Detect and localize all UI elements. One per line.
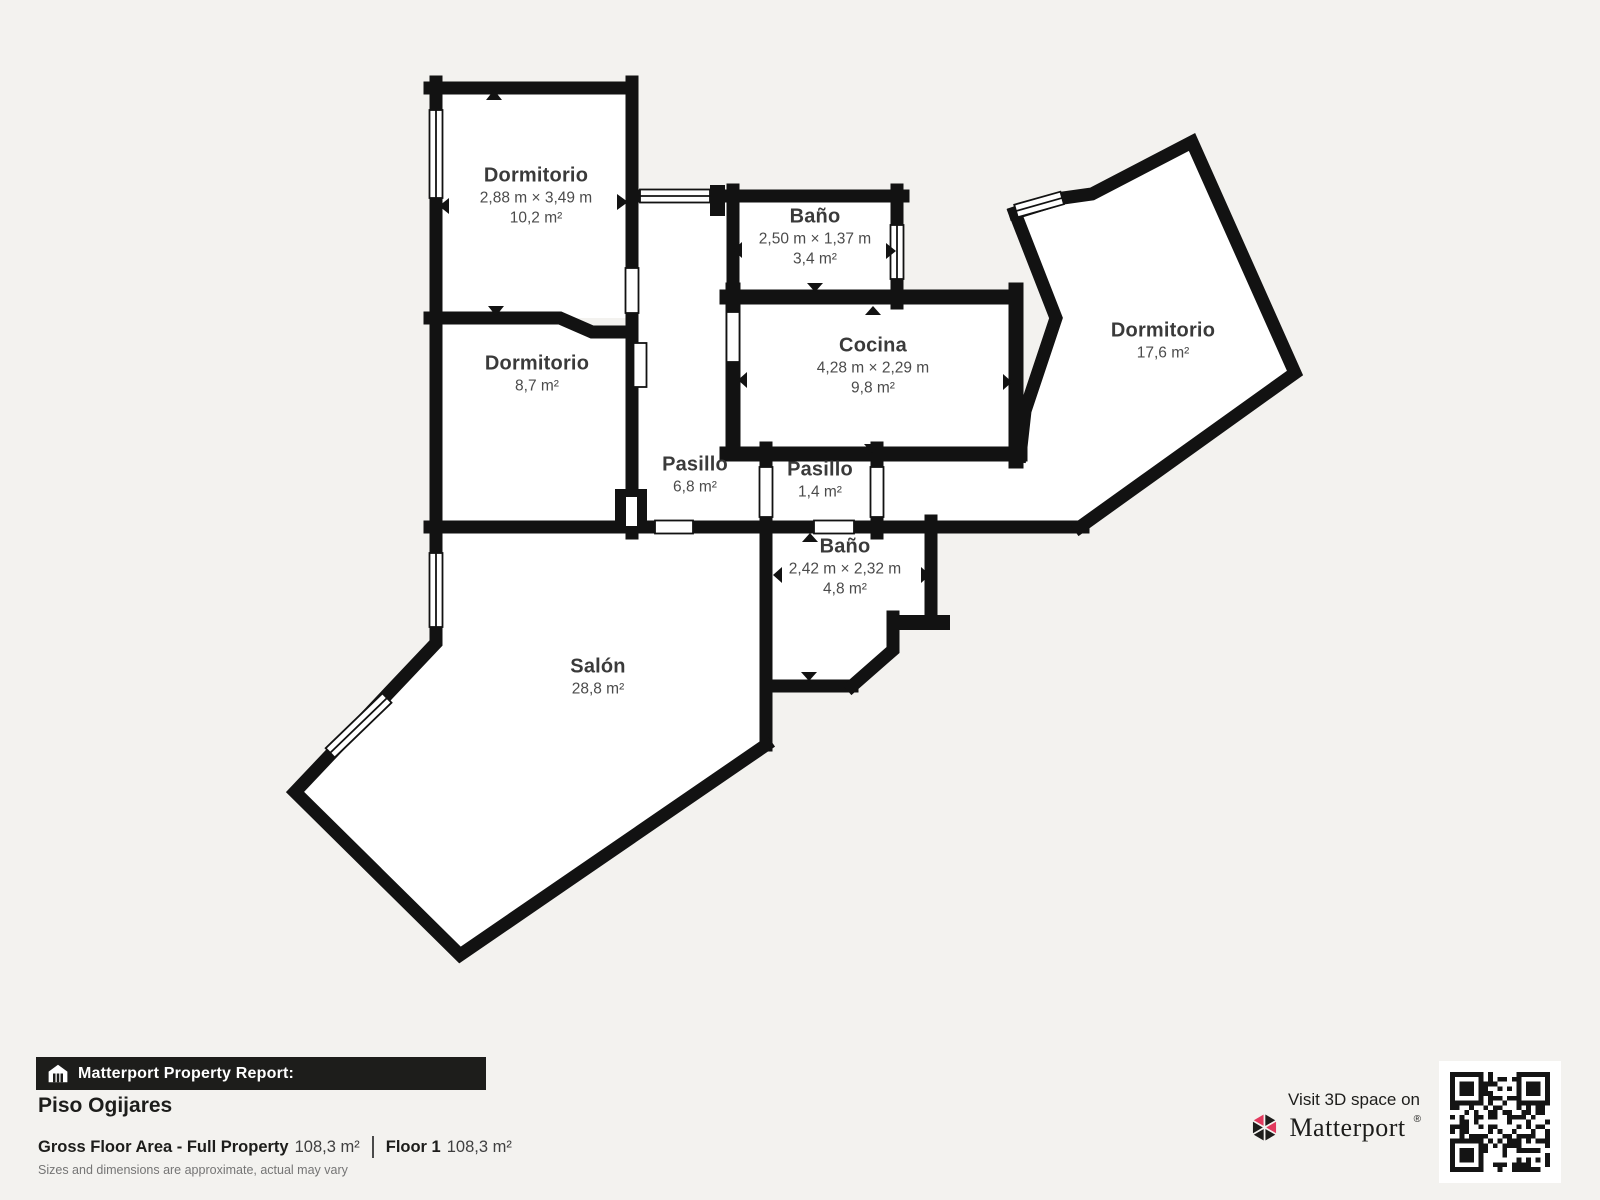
- room-shape-dormitorio-1: [430, 88, 632, 318]
- gross-area-value: 108,3 m²: [295, 1138, 360, 1157]
- qr-code-pattern: [1450, 1072, 1550, 1172]
- house-icon: [48, 1064, 68, 1083]
- door-leaf-icon: [760, 467, 773, 517]
- area-stats: Gross Floor Area - Full Property 108,3 m…: [38, 1136, 512, 1158]
- room-shape-salon: [295, 527, 766, 955]
- matterport-logo: Matterport ®: [1248, 1111, 1421, 1144]
- window-icon: [640, 190, 710, 203]
- door-openings: [626, 497, 637, 526]
- report-banner-label: Matterport Property Report:: [78, 1065, 294, 1083]
- door-leaf-icon: [634, 343, 647, 387]
- property-name: Piso Ogijares: [38, 1094, 172, 1118]
- matterport-pinwheel-icon: [1248, 1111, 1281, 1144]
- room-shape-pasillo-2: [766, 454, 877, 527]
- disclaimer-text: Sizes and dimensions are approximate, ac…: [38, 1163, 348, 1177]
- qr-code: [1439, 1061, 1561, 1183]
- trademark-mark: ®: [1414, 1114, 1421, 1125]
- room-shape-dormitorio-2: [436, 318, 632, 527]
- floor-label: Floor 1: [386, 1138, 441, 1157]
- stats-divider: [372, 1136, 374, 1158]
- floorplan: [0, 0, 1600, 1010]
- door-leaf-icon: [871, 467, 884, 517]
- door-leaf-icon: [626, 268, 639, 313]
- gross-area-label: Gross Floor Area - Full Property: [38, 1138, 289, 1157]
- window-icon: [430, 553, 443, 627]
- door-leaf-icon: [814, 521, 854, 534]
- room-shape-bano-1: [733, 196, 897, 297]
- wall-stub: [710, 185, 725, 216]
- room-shape-cocina: [733, 297, 1016, 454]
- floor-value: 108,3 m²: [447, 1138, 512, 1157]
- door-opening: [626, 497, 637, 526]
- window-icon: [430, 110, 443, 198]
- wall-stub: [887, 615, 950, 630]
- door-leaf-icon: [655, 521, 693, 534]
- door-leaf-icon: [727, 312, 740, 362]
- room-shape-bano-2: [766, 527, 931, 686]
- report-banner: Matterport Property Report:: [36, 1057, 486, 1090]
- visit-3d-text: Visit 3D space on: [1288, 1090, 1420, 1110]
- matterport-wordmark: Matterport: [1289, 1113, 1405, 1143]
